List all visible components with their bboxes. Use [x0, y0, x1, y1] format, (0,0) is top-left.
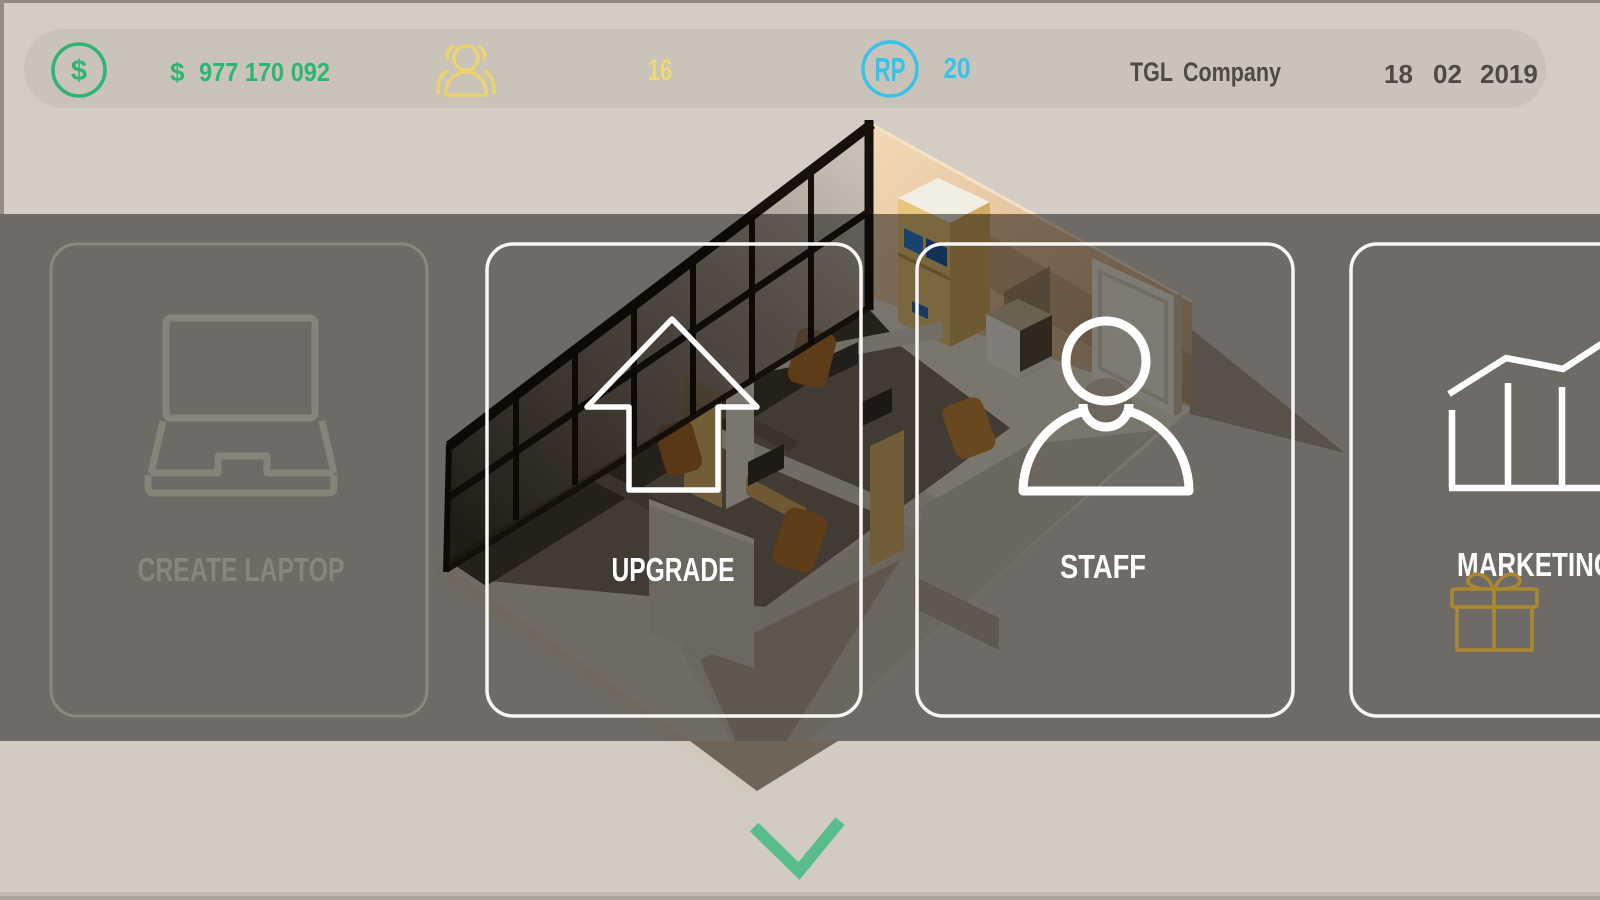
svg-text:$: $	[170, 57, 185, 87]
svg-text:$: $	[71, 55, 87, 87]
svg-text:MARKETING: MARKETING	[1457, 546, 1600, 583]
svg-text:16: 16	[648, 54, 673, 87]
svg-text:TGL: TGL	[1130, 57, 1173, 87]
svg-text:18: 18	[1384, 59, 1413, 89]
svg-text:977 170 092: 977 170 092	[199, 57, 330, 87]
svg-text:RP: RP	[875, 51, 906, 88]
svg-text:2019: 2019	[1480, 59, 1538, 89]
svg-text:02: 02	[1433, 59, 1462, 89]
svg-text:20: 20	[944, 53, 971, 85]
svg-text:Company: Company	[1183, 57, 1281, 87]
svg-text:UPGRADE: UPGRADE	[612, 551, 735, 588]
svg-text:STAFF: STAFF	[1060, 548, 1146, 585]
svg-text:CREATE LAPTOP: CREATE LAPTOP	[138, 551, 345, 588]
